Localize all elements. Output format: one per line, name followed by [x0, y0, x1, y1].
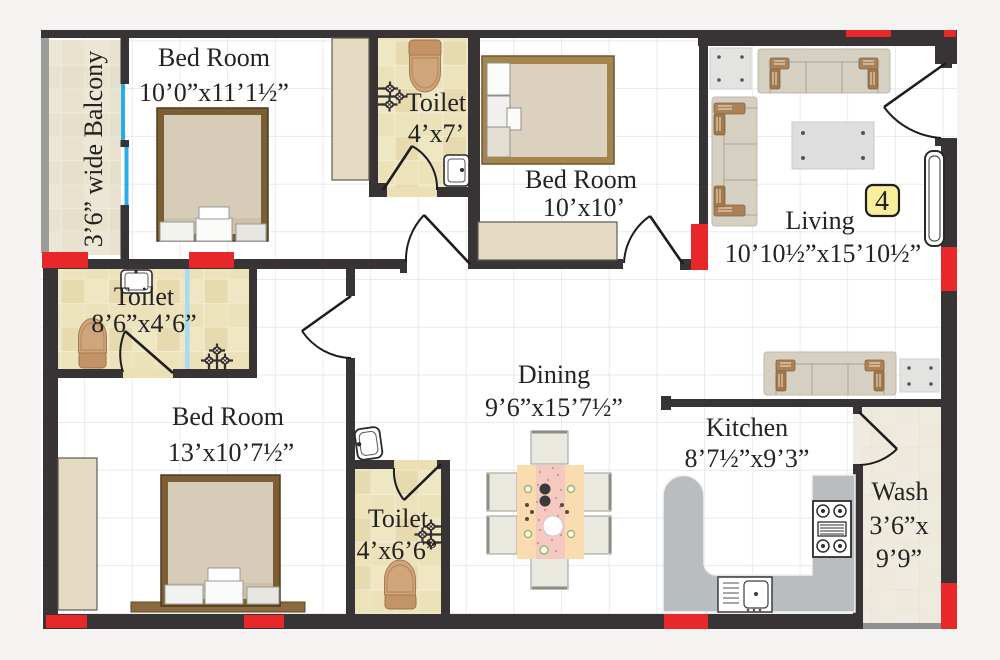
- svg-text:9’6”x15’7½”: 9’6”x15’7½”: [485, 393, 623, 422]
- svg-text:Bed Room: Bed Room: [158, 43, 270, 72]
- svg-text:10’0”x11’1½”: 10’0”x11’1½”: [139, 78, 289, 107]
- svg-text:8’6”x4’6”: 8’6”x4’6”: [91, 309, 196, 338]
- svg-text:Dining: Dining: [518, 360, 590, 389]
- svg-text:Bed Room: Bed Room: [525, 165, 637, 194]
- svg-text:Bed Room: Bed Room: [172, 402, 284, 431]
- svg-text:Living: Living: [785, 206, 854, 235]
- svg-text:Toilet: Toilet: [368, 504, 429, 533]
- svg-text:9’9”: 9’9”: [876, 544, 922, 573]
- svg-text:Toilet: Toilet: [114, 282, 175, 311]
- svg-text:3’6” wide Balcony: 3’6” wide Balcony: [79, 51, 108, 247]
- svg-text:4: 4: [875, 186, 889, 217]
- svg-text:Kitchen: Kitchen: [706, 413, 788, 442]
- svg-text:4’x6’6”: 4’x6’6”: [357, 536, 438, 565]
- svg-text:10’10½”x15’10½”: 10’10½”x15’10½”: [725, 239, 921, 268]
- svg-text:Toilet: Toilet: [406, 88, 467, 117]
- svg-text:3’6”x: 3’6”x: [869, 511, 928, 540]
- svg-text:13’x10’7½”: 13’x10’7½”: [168, 438, 294, 467]
- svg-text:10’x10’: 10’x10’: [543, 193, 625, 222]
- svg-text:4’x7’: 4’x7’: [408, 119, 464, 148]
- svg-text:8’7½”x9’3”: 8’7½”x9’3”: [685, 444, 810, 473]
- svg-text:Wash: Wash: [871, 477, 928, 506]
